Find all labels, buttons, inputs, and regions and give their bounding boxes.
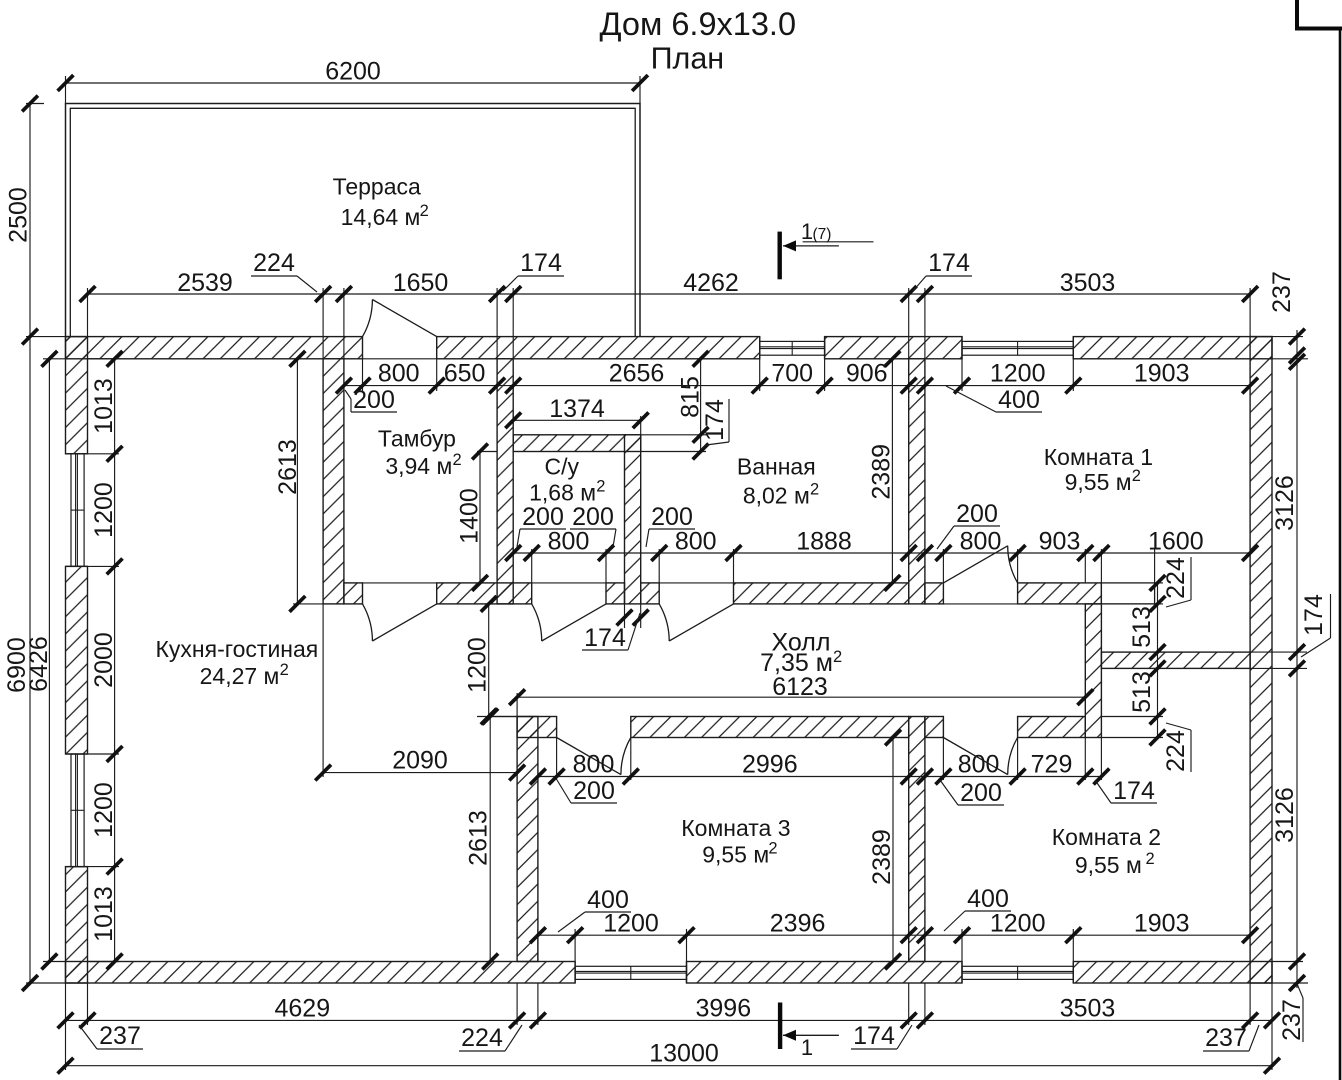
svg-text:1,68 м: 1,68 м [529,480,596,506]
svg-text:2: 2 [833,648,842,666]
svg-text:1374: 1374 [549,395,605,423]
svg-text:2: 2 [420,202,429,220]
svg-text:1013: 1013 [90,378,118,434]
svg-text:1013: 1013 [90,886,118,942]
svg-text:174: 174 [520,249,562,277]
svg-text:1: 1 [801,219,813,244]
svg-text:1200: 1200 [990,360,1046,388]
svg-text:800: 800 [573,751,615,779]
svg-text:729: 729 [1031,751,1073,779]
svg-text:200: 200 [651,503,693,531]
svg-text:800: 800 [960,528,1002,556]
svg-text:237: 237 [1205,1024,1247,1052]
svg-text:1600: 1600 [1148,528,1204,556]
svg-text:1650: 1650 [393,269,449,297]
svg-text:174: 174 [584,624,626,652]
svg-text:2: 2 [810,481,819,499]
svg-text:400: 400 [998,386,1040,414]
svg-text:2: 2 [1146,850,1155,868]
svg-text:2996: 2996 [742,751,798,779]
svg-text:13000: 13000 [649,1040,719,1068]
svg-text:800: 800 [548,528,590,556]
svg-text:3996: 3996 [695,995,751,1023]
svg-text:Терраса: Терраса [333,174,421,200]
svg-text:174: 174 [1113,777,1155,805]
svg-text:800: 800 [958,751,1000,779]
svg-text:174: 174 [1300,594,1328,636]
svg-text:План: План [651,41,725,75]
svg-text:2613: 2613 [274,439,302,495]
svg-text:2: 2 [1132,467,1141,485]
svg-text:237: 237 [1278,999,1306,1041]
svg-text:1200: 1200 [990,910,1046,938]
svg-text:906: 906 [846,360,888,388]
svg-text:Дом 6.9x13.0: Дом 6.9x13.0 [600,6,797,42]
svg-text:200: 200 [960,779,1002,807]
svg-text:14,64 м: 14,64 м [341,204,421,230]
svg-text:3,94 м: 3,94 м [385,453,452,479]
svg-text:Кухня-гостиная: Кухня-гостиная [156,636,319,662]
svg-text:237: 237 [99,1022,141,1050]
svg-text:1200: 1200 [464,637,492,693]
svg-text:174: 174 [701,399,729,441]
svg-text:224: 224 [1162,557,1190,599]
svg-text:1903: 1903 [1134,910,1190,938]
svg-text:(7): (7) [813,226,832,243]
svg-text:2: 2 [280,661,289,679]
svg-text:Ванная: Ванная [737,454,816,480]
svg-text:1903: 1903 [1134,360,1190,388]
svg-text:2000: 2000 [90,632,118,688]
svg-text:800: 800 [378,360,420,388]
svg-text:174: 174 [928,249,970,277]
svg-text:650: 650 [444,360,486,388]
svg-text:513: 513 [1128,606,1156,648]
svg-text:400: 400 [587,886,629,914]
svg-text:24,27 м: 24,27 м [200,663,280,689]
svg-text:2389: 2389 [868,829,896,885]
svg-text:513: 513 [1128,671,1156,713]
svg-text:800: 800 [675,528,717,556]
svg-text:903: 903 [1039,528,1081,556]
svg-text:3126: 3126 [1271,787,1299,843]
svg-text:700: 700 [771,360,813,388]
svg-text:С/у: С/у [545,454,580,480]
svg-text:200: 200 [956,500,998,528]
svg-text:224: 224 [1162,730,1190,772]
svg-text:200: 200 [573,777,615,805]
svg-text:400: 400 [967,885,1009,913]
svg-text:2396: 2396 [770,910,826,938]
svg-text:3503: 3503 [1060,995,1116,1023]
svg-text:224: 224 [461,1024,503,1052]
svg-text:Комната 2: Комната 2 [1052,824,1161,850]
svg-text:2656: 2656 [609,360,665,388]
svg-text:9,55 м: 9,55 м [1065,469,1132,495]
svg-text:1: 1 [801,1035,813,1060]
svg-text:174: 174 [853,1022,895,1050]
svg-text:6426: 6426 [25,636,53,692]
svg-text:2090: 2090 [392,747,448,775]
svg-text:2: 2 [453,451,462,469]
svg-text:1200: 1200 [90,782,118,838]
svg-text:2500: 2500 [5,187,33,243]
svg-text:3503: 3503 [1060,269,1116,297]
svg-text:224: 224 [253,249,295,277]
svg-text:6123: 6123 [772,673,828,701]
svg-text:200: 200 [572,503,614,531]
svg-text:237: 237 [1268,271,1296,313]
svg-text:2389: 2389 [868,444,896,500]
svg-text:6200: 6200 [325,58,381,86]
svg-text:2: 2 [768,840,777,858]
svg-text:1400: 1400 [456,488,484,544]
svg-text:200: 200 [522,503,564,531]
svg-text:200: 200 [353,386,395,414]
svg-text:9,55 м: 9,55 м [702,842,769,868]
svg-text:8,02 м: 8,02 м [743,483,810,509]
svg-text:1200: 1200 [90,482,118,538]
svg-text:2: 2 [596,478,605,496]
svg-text:Комната 3: Комната 3 [681,815,790,841]
svg-text:3126: 3126 [1271,475,1299,531]
svg-text:2539: 2539 [177,269,233,297]
svg-text:Тамбур: Тамбур [378,426,456,452]
svg-text:2613: 2613 [465,810,493,866]
svg-text:9,55 м: 9,55 м [1075,852,1142,878]
svg-text:1888: 1888 [796,528,852,556]
svg-text:4629: 4629 [274,995,330,1023]
svg-text:4262: 4262 [683,269,739,297]
